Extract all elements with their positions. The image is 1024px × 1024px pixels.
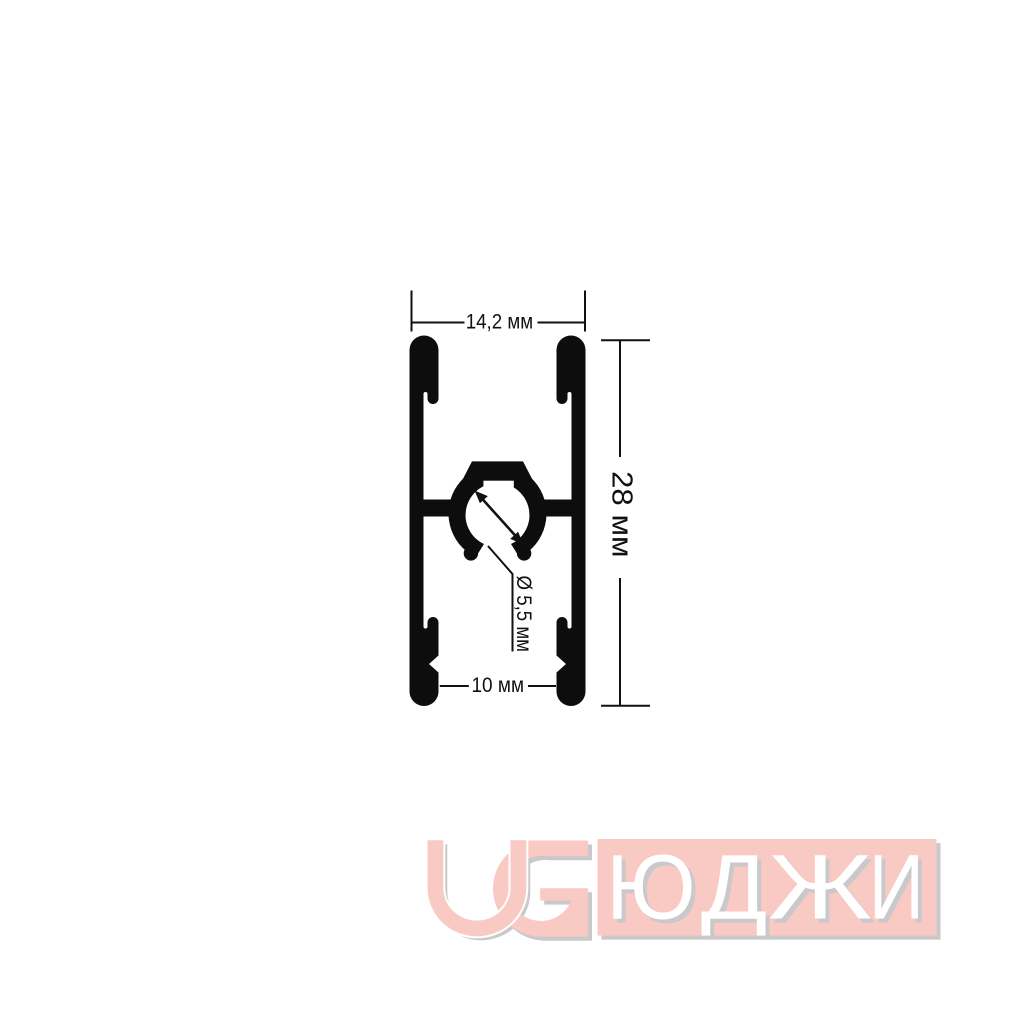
svg-text:28 мм: 28 мм — [606, 471, 638, 558]
svg-text:И: И — [869, 836, 925, 939]
svg-text:14,2 мм: 14,2 мм — [466, 309, 533, 333]
svg-text:Д: Д — [701, 837, 767, 939]
svg-text:Ю: Ю — [606, 836, 696, 939]
svg-text:Ø 5,5 мм: Ø 5,5 мм — [512, 576, 536, 653]
svg-text:10 мм: 10 мм — [472, 673, 525, 697]
svg-text:Ж: Ж — [768, 836, 872, 938]
